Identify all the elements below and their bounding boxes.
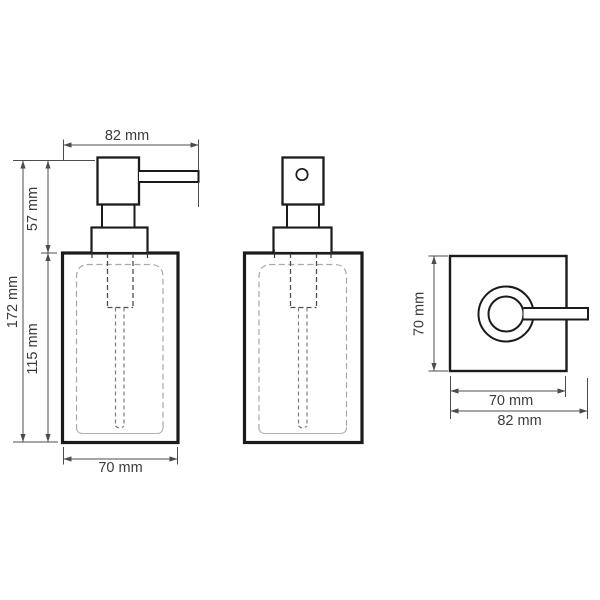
top-total-width-label: 82 mm [497,413,541,429]
front-width-top-label: 82 mm [105,128,149,144]
top-view [450,256,588,371]
technical-drawing-canvas: 82 mm 172 mm 57 mm 115 mm 70 [0,0,600,600]
front-view [63,158,199,443]
side-view [245,158,363,443]
side-pump-collar [274,228,332,254]
front-body-outline [63,253,179,443]
front-dim-body-height: 115 mm [25,253,51,442]
front-body-height-label: 115 mm [25,323,41,374]
side-nozzle-hole [296,169,307,180]
front-pump-collar [92,228,148,254]
front-dim-pump-height: 57 mm [25,161,57,254]
top-depth-label: 70 mm [412,292,428,336]
side-pump-neck [287,205,319,228]
top-pump-head-circle [489,297,524,332]
front-pump-height-label: 57 mm [25,187,41,231]
top-pump-spout [524,308,589,320]
top-body-width-label: 70 mm [489,393,533,409]
front-pump-spout [139,171,199,182]
front-total-height-label: 172 mm [5,276,21,328]
front-pump-head [98,158,140,205]
front-pump-neck [102,205,135,228]
side-body-outline [245,253,363,443]
dispenser-dimension-drawing: 82 mm 172 mm 57 mm 115 mm 70 [0,0,600,600]
side-pump-head [283,158,324,205]
front-dim-width-bottom: 70 mm [64,447,178,476]
top-dim-depth: 70 mm [412,256,449,371]
front-width-bottom-label: 70 mm [98,460,142,476]
